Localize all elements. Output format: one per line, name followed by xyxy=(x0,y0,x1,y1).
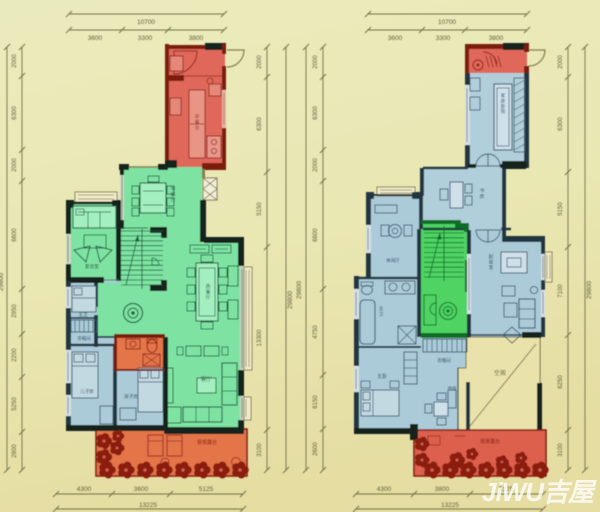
svg-text:家: 家 xyxy=(501,92,506,98)
svg-text:6150: 6150 xyxy=(313,395,319,409)
svg-text:29800: 29800 xyxy=(287,291,294,309)
svg-text:台: 台 xyxy=(195,124,200,131)
svg-text:3800: 3800 xyxy=(189,35,204,42)
svg-text:衣帽间: 衣帽间 xyxy=(77,335,90,342)
svg-text:5250: 5250 xyxy=(12,397,18,411)
svg-text:5150: 5150 xyxy=(558,202,564,216)
svg-text:6300: 6300 xyxy=(313,106,319,120)
svg-text:院: 院 xyxy=(501,108,506,115)
svg-text:3600: 3600 xyxy=(134,486,149,493)
svg-text:室: 室 xyxy=(489,264,494,270)
svg-text:29800: 29800 xyxy=(296,281,303,299)
svg-text:2000: 2000 xyxy=(257,55,263,69)
svg-text:2800: 2800 xyxy=(12,444,18,458)
svg-text:6600: 6600 xyxy=(12,228,18,242)
svg-text:3800: 3800 xyxy=(435,486,450,493)
svg-text:客厅: 客厅 xyxy=(201,375,212,383)
svg-text:景观露台: 景观露台 xyxy=(197,439,217,446)
svg-text:5150: 5150 xyxy=(257,202,263,216)
svg-text:7100: 7100 xyxy=(558,284,564,298)
svg-text:3600: 3600 xyxy=(88,35,103,42)
svg-text:影音室: 影音室 xyxy=(85,263,99,270)
svg-text:主: 主 xyxy=(379,305,384,311)
svg-text:4300: 4300 xyxy=(77,486,92,493)
svg-text:13300: 13300 xyxy=(257,329,263,346)
svg-text:3100: 3100 xyxy=(257,443,263,457)
svg-text:休闲厅: 休闲厅 xyxy=(386,257,400,264)
svg-text:3300: 3300 xyxy=(436,35,451,42)
svg-text:书房: 书房 xyxy=(447,385,457,392)
svg-text:3100: 3100 xyxy=(558,443,564,457)
svg-text:厅: 厅 xyxy=(206,295,211,300)
svg-text:5125: 5125 xyxy=(199,486,214,493)
svg-text:2950: 2950 xyxy=(12,304,18,318)
svg-text:书: 书 xyxy=(480,187,485,194)
svg-text:早: 早 xyxy=(171,186,176,192)
svg-text:JiWU吉屋: JiWU吉屋 xyxy=(482,477,597,507)
svg-text:6300: 6300 xyxy=(12,106,18,120)
svg-text:主卧: 主卧 xyxy=(377,373,387,380)
svg-text:衣帽间: 衣帽间 xyxy=(437,357,451,364)
svg-text:儿子房: 儿子房 xyxy=(80,388,94,395)
svg-text:卫: 卫 xyxy=(379,312,384,317)
svg-text:6300: 6300 xyxy=(558,117,564,131)
svg-text:2000: 2000 xyxy=(313,55,319,69)
svg-text:29800: 29800 xyxy=(0,273,5,291)
svg-text:13225: 13225 xyxy=(139,502,157,509)
svg-text:2000: 2000 xyxy=(12,54,18,68)
svg-text:主卫: 主卫 xyxy=(78,311,88,317)
svg-text:2600: 2600 xyxy=(313,442,319,456)
svg-text:孩子房: 孩子房 xyxy=(124,393,138,400)
svg-text:2000: 2000 xyxy=(558,55,564,69)
svg-text:3300: 3300 xyxy=(138,35,153,42)
svg-text:厅: 厅 xyxy=(171,198,176,204)
svg-text:6300: 6300 xyxy=(257,117,263,131)
svg-text:6250: 6250 xyxy=(558,375,564,389)
svg-text:4300: 4300 xyxy=(377,486,392,493)
svg-text:29800: 29800 xyxy=(586,281,593,299)
svg-text:2000: 2000 xyxy=(12,158,18,172)
svg-text:10700: 10700 xyxy=(438,19,456,26)
svg-text:2000: 2000 xyxy=(313,158,319,172)
svg-text:2200: 2200 xyxy=(12,348,18,362)
svg-text:4750: 4750 xyxy=(313,325,319,339)
svg-text:13225: 13225 xyxy=(441,502,459,509)
svg-text:3800: 3800 xyxy=(489,35,504,42)
svg-text:空阁: 空阁 xyxy=(494,369,506,377)
svg-text:3600: 3600 xyxy=(388,35,403,42)
svg-text:房: 房 xyxy=(480,193,485,200)
svg-text:10700: 10700 xyxy=(137,19,155,26)
svg-text:餐: 餐 xyxy=(171,191,176,198)
svg-text:观景露台: 观景露台 xyxy=(480,438,500,445)
svg-text:6600: 6600 xyxy=(313,228,319,242)
